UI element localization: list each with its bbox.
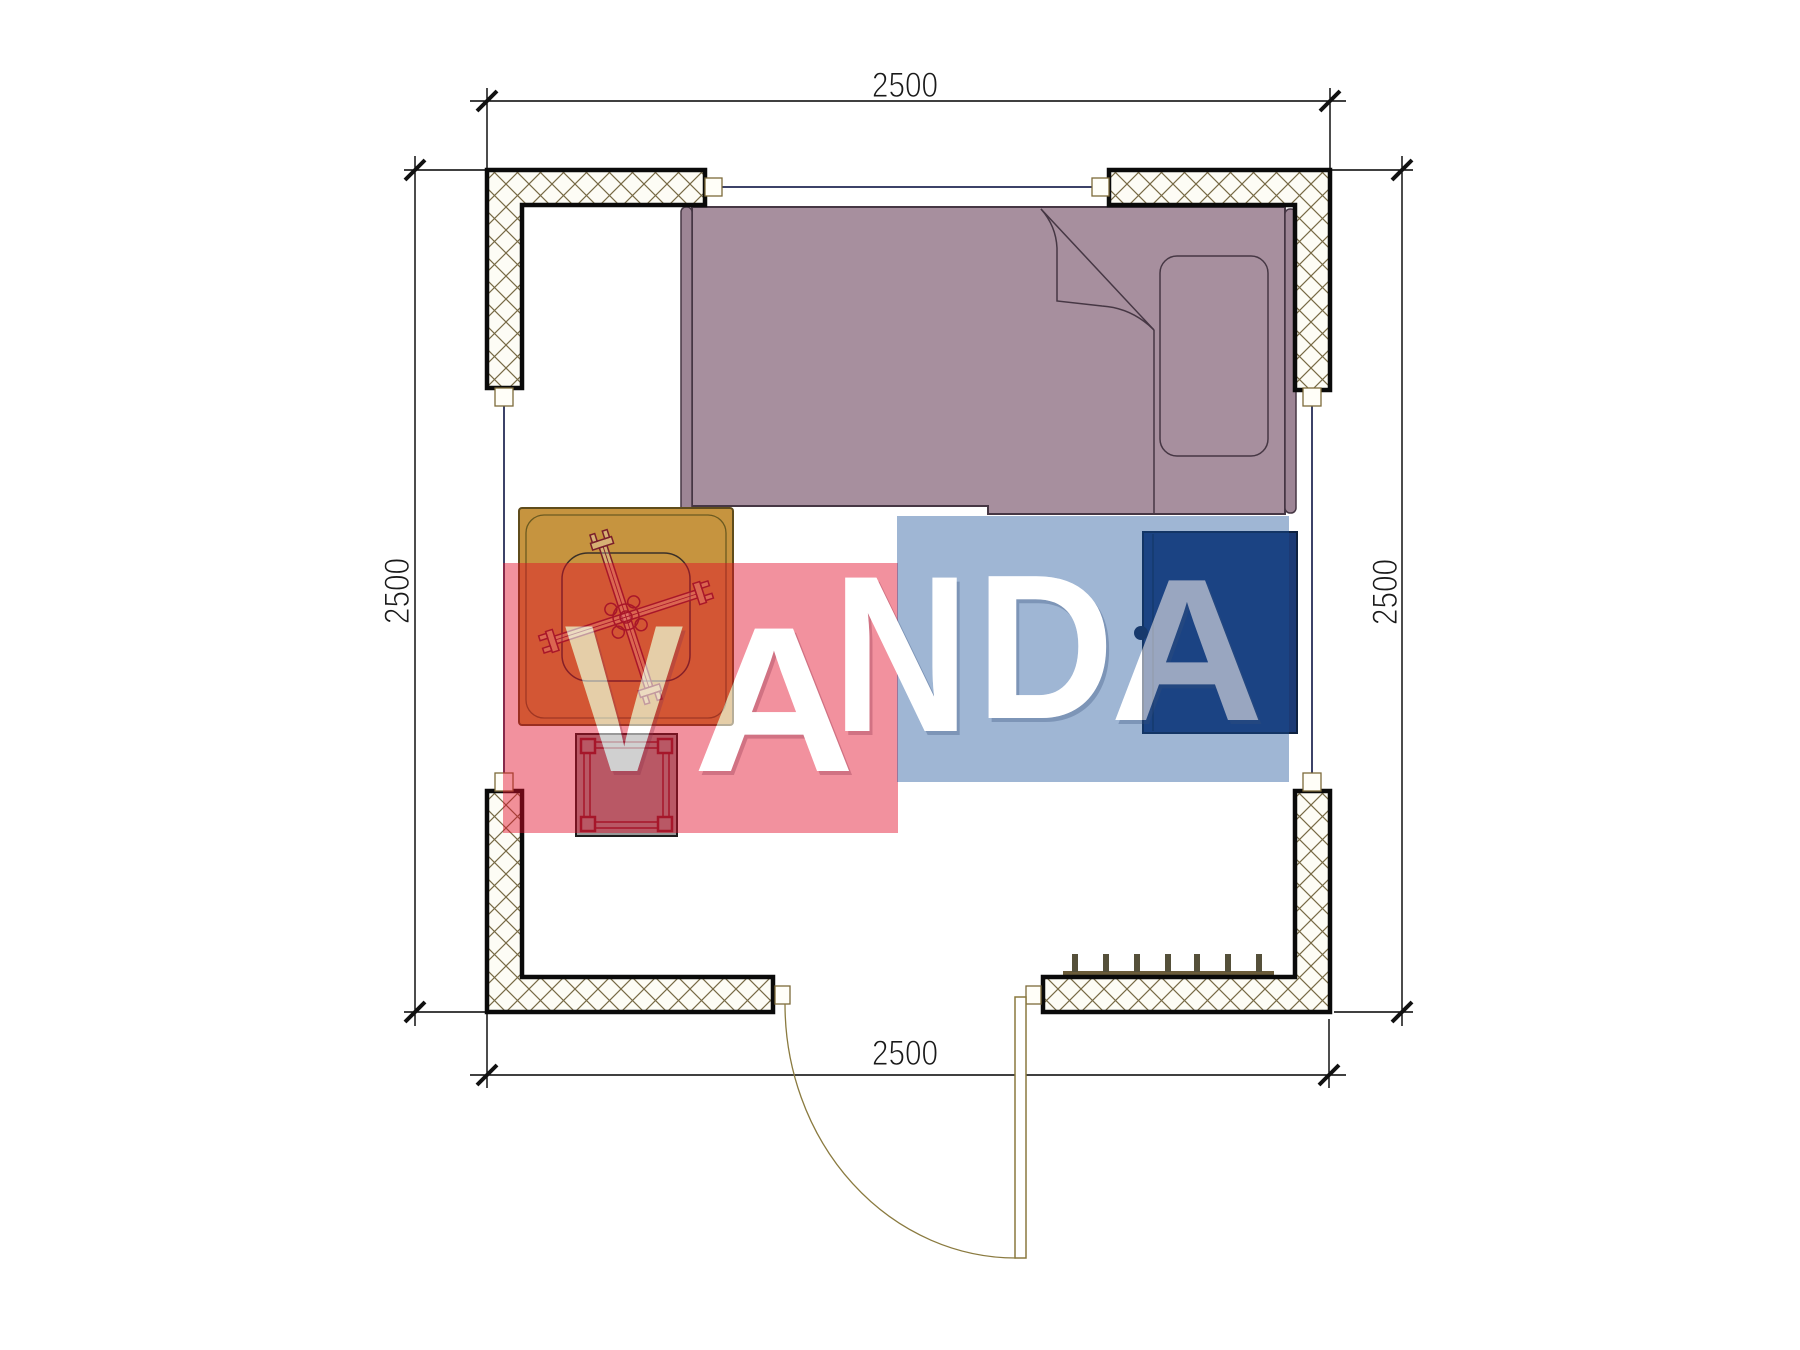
svg-text:D: D (976, 533, 1114, 763)
svg-text:N: N (833, 529, 970, 778)
svg-text:2500: 2500 (1366, 559, 1405, 625)
svg-text:A: A (1110, 538, 1264, 764)
svg-text:V: V (564, 582, 684, 816)
svg-text:A: A (693, 584, 855, 815)
svg-text:2500: 2500 (872, 1034, 938, 1073)
svg-text:2500: 2500 (378, 558, 417, 624)
svg-text:2500: 2500 (872, 66, 938, 105)
